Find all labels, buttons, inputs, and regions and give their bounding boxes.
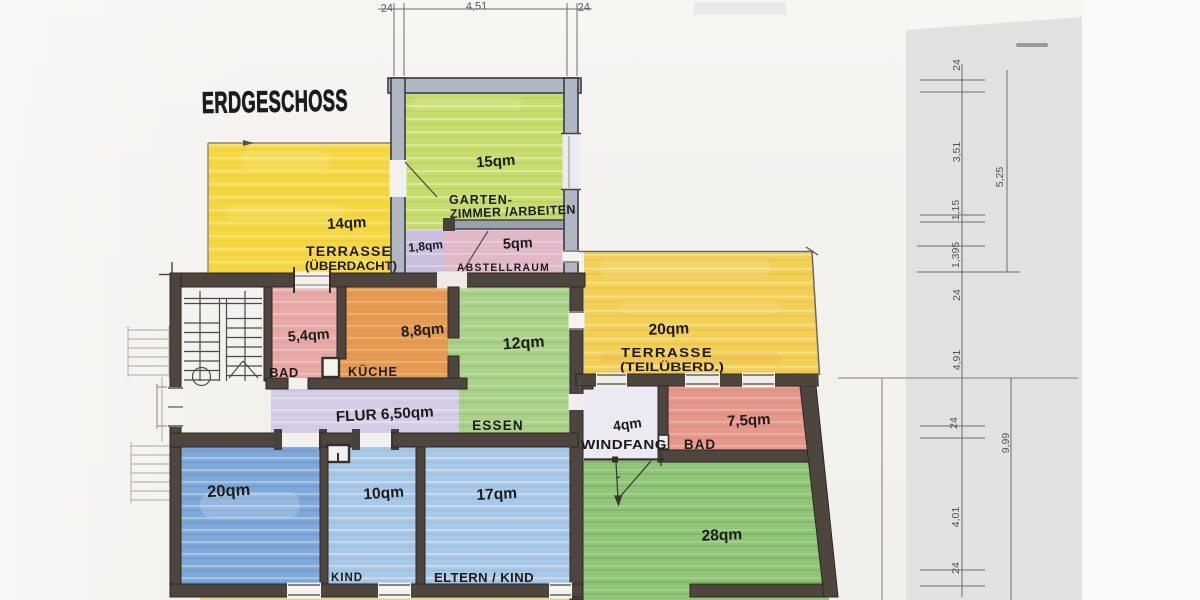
svg-text:5,25: 5,25 xyxy=(994,167,1006,188)
svg-text:1,395: 1,395 xyxy=(950,242,962,268)
svg-text:5qm: 5qm xyxy=(502,235,533,253)
svg-text:(TEILÜBERD.): (TEILÜBERD.) xyxy=(620,359,724,374)
svg-text:20qm: 20qm xyxy=(207,481,251,501)
svg-text:3,51: 3,51 xyxy=(951,142,963,163)
svg-text:ERDGESCHOSS: ERDGESCHOSS xyxy=(202,84,349,120)
svg-text:ESSEN: ESSEN xyxy=(472,418,524,433)
svg-text:ABSTELLRAUM: ABSTELLRAUM xyxy=(457,262,550,274)
svg-text:1,15: 1,15 xyxy=(950,200,962,221)
svg-text:5,4qm: 5,4qm xyxy=(287,327,330,346)
svg-text:20qm: 20qm xyxy=(648,320,689,338)
svg-text:24: 24 xyxy=(950,562,962,574)
svg-text:24: 24 xyxy=(577,1,590,14)
svg-text:14qm: 14qm xyxy=(327,214,367,233)
svg-text:15qm: 15qm xyxy=(476,152,516,172)
svg-text:24: 24 xyxy=(951,289,963,301)
svg-text:24: 24 xyxy=(380,2,393,15)
svg-text:28qm: 28qm xyxy=(701,526,742,544)
svg-text:17qm: 17qm xyxy=(476,485,517,504)
svg-text:10qm: 10qm xyxy=(363,484,405,504)
svg-text:4,91: 4,91 xyxy=(951,350,963,371)
svg-text:(ÜBERDACHT): (ÜBERDACHT) xyxy=(305,258,397,273)
svg-text:BAD: BAD xyxy=(269,365,299,380)
svg-text:TERRASSE: TERRASSE xyxy=(621,345,713,360)
svg-text:4,51: 4,51 xyxy=(466,0,488,13)
svg-text:TERRASSE: TERRASSE xyxy=(306,244,392,259)
svg-text:ELTERN / KIND: ELTERN / KIND xyxy=(434,571,534,585)
svg-text:KÜCHE: KÜCHE xyxy=(348,364,398,379)
svg-text:9,99: 9,99 xyxy=(1000,433,1012,454)
svg-text:7,5qm: 7,5qm xyxy=(727,411,771,430)
svg-text:12qm: 12qm xyxy=(502,334,545,354)
svg-text:4,01: 4,01 xyxy=(950,507,962,528)
svg-text:KIND: KIND xyxy=(331,572,363,584)
svg-text:BAD: BAD xyxy=(684,437,716,452)
svg-text:24: 24 xyxy=(951,59,963,71)
svg-text:WINDFANG: WINDFANG xyxy=(581,438,667,452)
svg-text:24: 24 xyxy=(948,417,960,429)
